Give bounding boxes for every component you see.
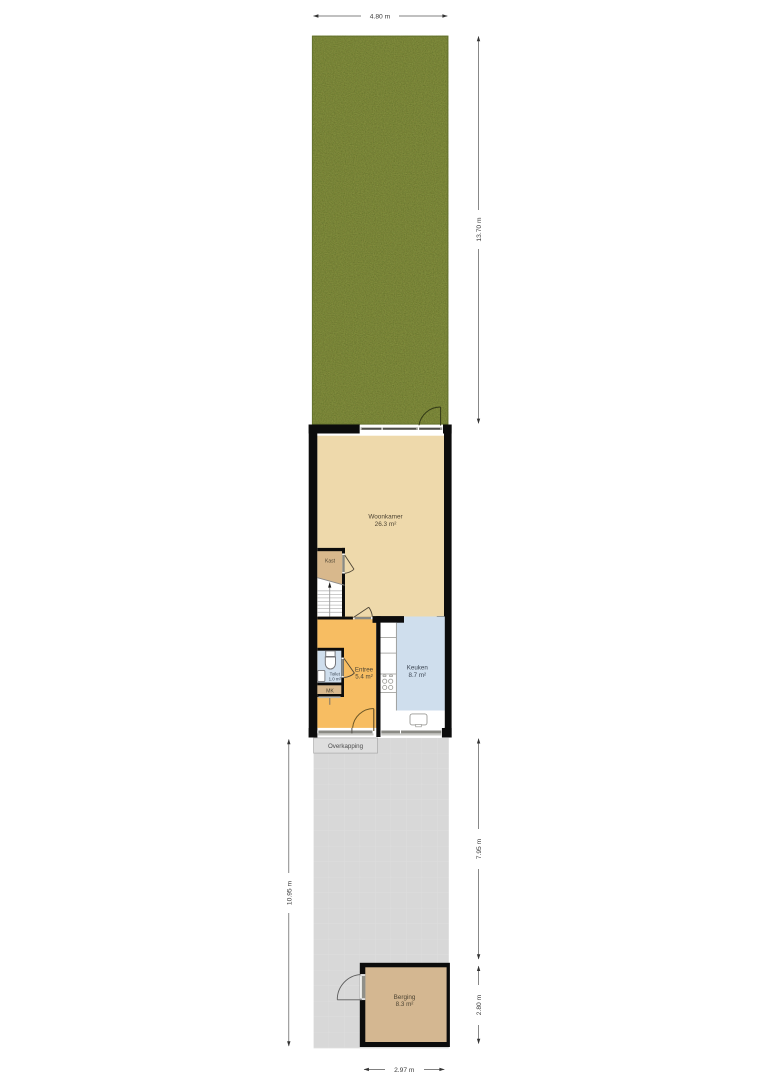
svg-text:7.95 m: 7.95 m bbox=[476, 838, 483, 859]
svg-text:MK: MK bbox=[326, 689, 334, 695]
svg-text:8.3 m²: 8.3 m² bbox=[396, 1001, 414, 1008]
svg-text:Kast: Kast bbox=[325, 559, 336, 565]
svg-text:26.3 m²: 26.3 m² bbox=[375, 521, 397, 528]
svg-text:Keuken: Keuken bbox=[407, 665, 429, 672]
svg-text:8.7 m²: 8.7 m² bbox=[409, 672, 427, 679]
svg-text:Berging: Berging bbox=[394, 994, 416, 1001]
svg-text:Woonkamer: Woonkamer bbox=[368, 514, 403, 521]
svg-text:Entree: Entree bbox=[355, 667, 374, 674]
svg-text:2.80 m: 2.80 m bbox=[476, 994, 483, 1015]
svg-text:Overkapping: Overkapping bbox=[328, 743, 364, 750]
svg-text:13.70 m: 13.70 m bbox=[476, 217, 483, 242]
svg-text:4.80 m: 4.80 m bbox=[370, 14, 391, 21]
svg-text:5.4 m²: 5.4 m² bbox=[355, 674, 373, 681]
svg-text:1.0 m²: 1.0 m² bbox=[329, 677, 342, 682]
svg-text:2.97 m: 2.97 m bbox=[394, 1067, 415, 1074]
svg-text:10.95 m: 10.95 m bbox=[286, 880, 293, 905]
